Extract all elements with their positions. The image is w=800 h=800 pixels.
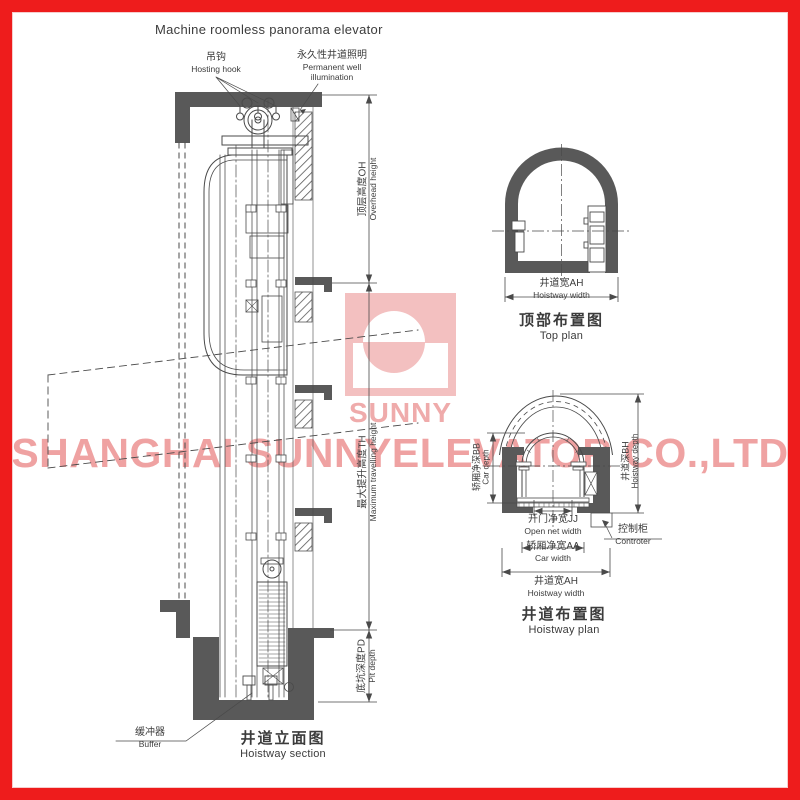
hp-hoistway-width-en: Hoistway width xyxy=(506,588,606,598)
section-title-en: Hoistway section xyxy=(222,748,344,761)
overhead-height-en: Overhead height xyxy=(368,158,378,221)
well-illumination-en1: Permanent well xyxy=(283,62,381,72)
controller-label: 控制柜 Controter xyxy=(602,524,664,546)
hosting-hook-zh: 吊钩 xyxy=(178,52,254,64)
open-net-width-en: Open net width xyxy=(503,526,603,536)
label-well-illumination: 永久性井道照明 Permanent well illumination xyxy=(283,50,381,82)
sunny-logo-text: SUNNY xyxy=(343,397,458,429)
sunny-logo-sun-top-icon xyxy=(363,311,425,342)
top-plan-title-zh: 顶部布置图 xyxy=(506,312,617,330)
car-width-en: Car width xyxy=(503,553,603,563)
hp-hoistway-width-zh: 井道宽AH xyxy=(506,576,606,588)
hp-hoistway-width-label: 井道宽AH Hoistway width xyxy=(506,576,606,598)
pit-depth-en: Pit depth xyxy=(367,649,377,683)
car-width-label: 轿厢净宽AA Car width xyxy=(503,541,603,563)
section-title-zh: 井道立面图 xyxy=(222,730,344,748)
open-net-width-label: 开门净宽JJ Open net width xyxy=(503,514,603,536)
section-title: 井道立面图 Hoistway section xyxy=(222,730,344,761)
open-net-width-zh: 开门净宽JJ xyxy=(503,514,603,526)
hoistway-plan-title-en: Hoistway plan xyxy=(505,624,623,637)
overhead-height-zh: 顶层高度OH xyxy=(354,162,369,217)
hosting-hook-en: Hosting hook xyxy=(178,64,254,74)
controller-en: Controter xyxy=(602,536,664,546)
car-width-zh: 轿厢净宽AA xyxy=(503,541,603,553)
car-depth-en: Car depth xyxy=(482,449,491,484)
hoistway-depth-en: Hoistway depth xyxy=(631,434,640,489)
travel-height-en: Maximum travelling height xyxy=(368,423,378,522)
top-plan-title: 顶部布置图 Top plan xyxy=(506,312,617,343)
well-illumination-zh: 永久性井道照明 xyxy=(283,50,381,62)
label-buffer: 缓冲器 Buffer xyxy=(112,727,188,749)
pit-depth-zh: 底坑深度PD xyxy=(353,639,368,693)
hoistway-plan-title: 井道布置图 Hoistway plan xyxy=(505,606,623,637)
controller-zh: 控制柜 xyxy=(602,524,664,536)
watermark-layer: SUNNY SHANGHAI SUNNYELEVATOR CO.,LTD xyxy=(0,0,800,800)
company-watermark: SHANGHAI SUNNYELEVATOR CO.,LTD xyxy=(0,430,800,477)
hoistway-plan-title-zh: 井道布置图 xyxy=(505,606,623,624)
buffer-zh: 缓冲器 xyxy=(112,727,188,739)
sunny-logo xyxy=(345,293,456,396)
top-plan-ah-en: Hoistway width xyxy=(506,290,617,300)
panorama-elevator-drawing: { "page": { "title": "Machine roomless p… xyxy=(0,0,800,800)
top-plan-hoistway-width: 井道宽AH Hoistway width xyxy=(506,278,617,300)
well-illumination-en2: illumination xyxy=(283,72,381,82)
travel-height-zh: 最大提升高度TH xyxy=(354,435,369,508)
page-title: Machine roomless panorama elevator xyxy=(155,22,383,37)
top-plan-ah-zh: 井道宽AH xyxy=(506,278,617,290)
buffer-en: Buffer xyxy=(112,739,188,749)
label-hosting-hook: 吊钩 Hosting hook xyxy=(178,52,254,74)
top-plan-title-en: Top plan xyxy=(506,330,617,343)
